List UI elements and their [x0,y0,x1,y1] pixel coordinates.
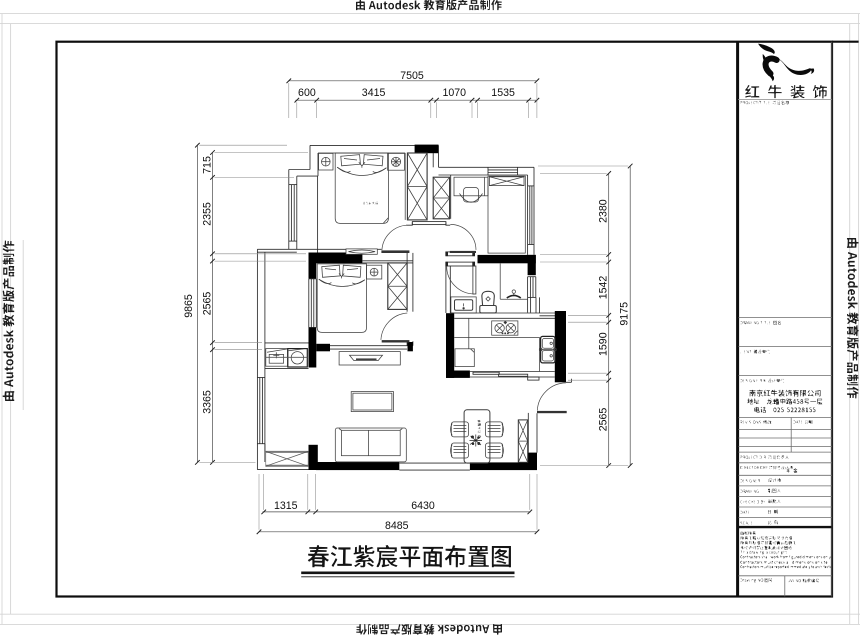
svg-text:1542: 1542 [598,276,610,300]
svg-text:1070: 1070 [443,87,467,99]
svg-text:9865: 9865 [183,294,195,318]
svg-text:1535: 1535 [491,87,515,99]
svg-text:7505: 7505 [400,70,424,82]
svg-text:600: 600 [298,87,316,99]
svg-text:715: 715 [201,156,213,174]
svg-text:2380: 2380 [598,199,610,223]
svg-text:2565: 2565 [201,292,213,316]
svg-text:3365: 3365 [201,390,213,414]
svg-text:3415: 3415 [362,87,386,99]
svg-text:2355: 2355 [201,202,213,226]
svg-text:6430: 6430 [411,500,435,512]
svg-text:1315: 1315 [274,500,298,512]
svg-text:8485: 8485 [385,520,409,532]
svg-text:9175: 9175 [619,302,631,326]
svg-text:1590: 1590 [598,332,610,356]
svg-text:2565: 2565 [598,408,610,432]
